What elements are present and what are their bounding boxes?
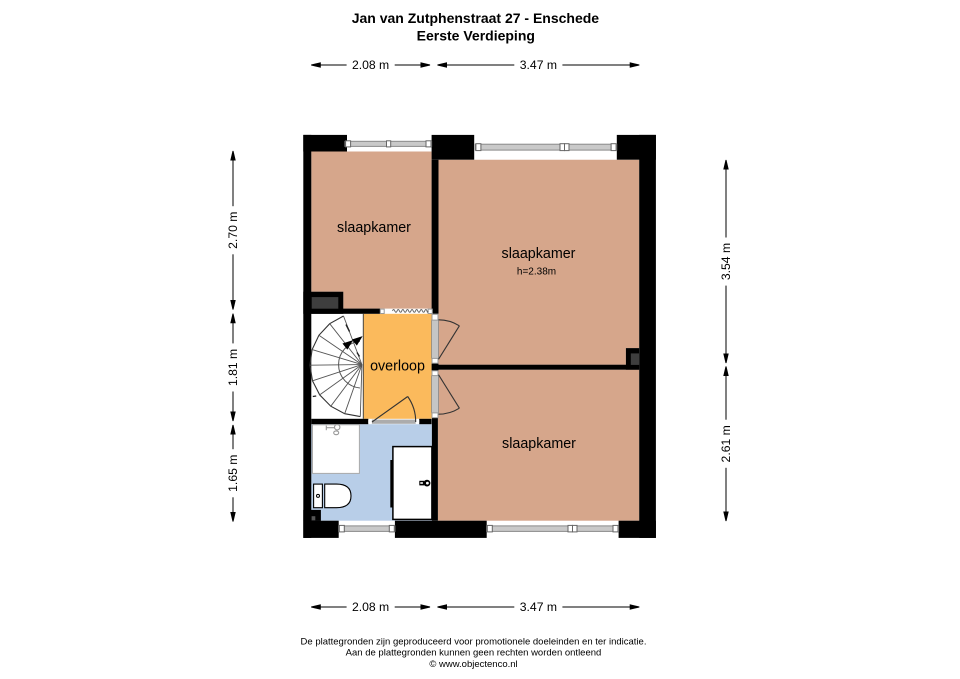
svg-text:2.61 m: 2.61 m xyxy=(719,425,733,462)
svg-text:overloop: overloop xyxy=(370,359,425,375)
svg-text:Jan van Zutphenstraat 27 - Ens: Jan van Zutphenstraat 27 - Enschede xyxy=(352,10,600,26)
svg-text:2.08 m: 2.08 m xyxy=(352,58,389,72)
svg-text:De plattegronden zijn geproduc: De plattegronden zijn geproduceerd voor … xyxy=(301,636,647,647)
svg-text:h=2.38m: h=2.38m xyxy=(517,267,556,278)
svg-text:1.65 m: 1.65 m xyxy=(226,455,240,492)
svg-text:slaapkamer: slaapkamer xyxy=(337,220,411,236)
svg-text:2.70 m: 2.70 m xyxy=(226,212,240,249)
svg-text:3.47 m: 3.47 m xyxy=(520,58,557,72)
svg-text:Aan de plattegronden kunnen ge: Aan de plattegronden kunnen geen rechten… xyxy=(346,648,602,659)
svg-text:2.08 m: 2.08 m xyxy=(352,600,389,614)
svg-text:1.81 m: 1.81 m xyxy=(226,349,240,386)
svg-text:slaapkamer: slaapkamer xyxy=(502,246,576,262)
svg-text:slaapkamer: slaapkamer xyxy=(502,436,576,452)
svg-text:Eerste Verdieping: Eerste Verdieping xyxy=(417,28,535,44)
svg-text:3.54 m: 3.54 m xyxy=(719,243,733,280)
svg-text:© www.objectenco.nl: © www.objectenco.nl xyxy=(429,659,517,670)
svg-text:3.47 m: 3.47 m xyxy=(520,600,557,614)
